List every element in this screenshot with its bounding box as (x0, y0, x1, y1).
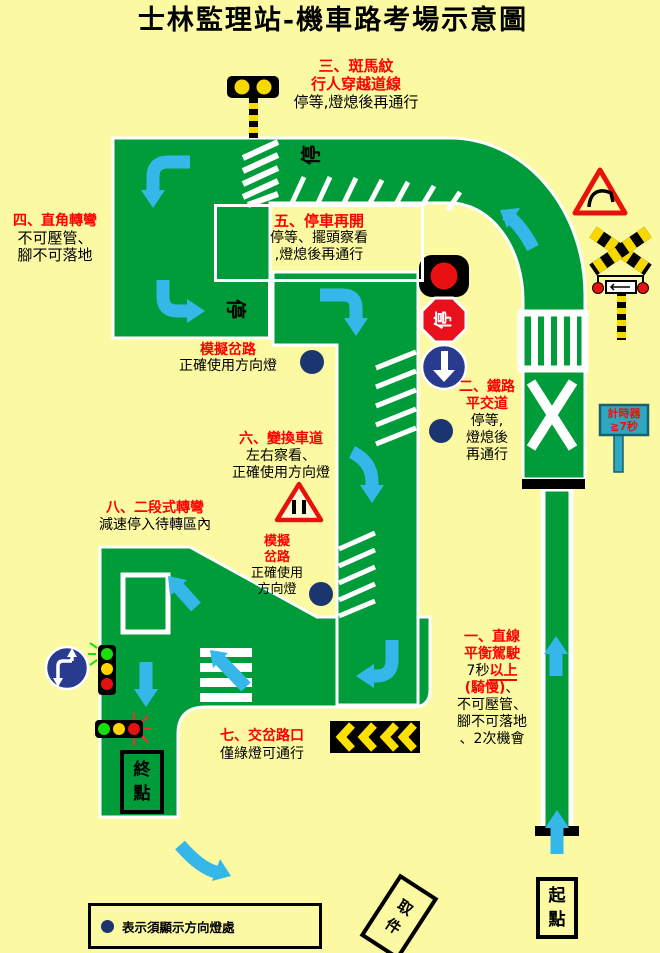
legend-box: 表示須顯示方向燈處 (88, 903, 322, 949)
section-1-heading-1: 一、直線 (457, 629, 527, 646)
section-5-body-2: ,燈熄後再通行 (217, 247, 421, 264)
section-1-body-4: 腳不可落地 (457, 714, 527, 731)
label-section-2: 二、鐵路 平交道 停等, 燈熄後 再通行 (459, 379, 515, 464)
stop-line-vertical (268, 282, 272, 338)
chevron-sign-icon (330, 721, 420, 753)
sim-fork-2-body-1: 正確使用 (251, 566, 303, 582)
section-1-heading-2: 平衡駕駛 (457, 646, 527, 663)
road-stop-word-left: 停 (224, 299, 248, 319)
section-4-body-2: 腳不可落地 (13, 247, 97, 264)
label-section-4: 四、直角轉彎 不可壓管、 腳不可落地 (13, 213, 97, 264)
narrow-road-sign-icon (277, 484, 321, 520)
section-4-body-1: 不可壓管、 (13, 230, 97, 247)
label-section-8: 八、二段式轉彎 減速停入待轉區內 (99, 500, 211, 534)
section-1-seconds: 7秒 (467, 663, 490, 679)
label-section-7: 七、交岔路口 僅綠燈可通行 (220, 727, 304, 763)
sim-fork-1-body: 正確使用方向燈 (179, 358, 277, 374)
sim-fork-2-heading-2: 岔路 (251, 550, 303, 566)
course-map: 計時器 ≧7秒 停 (0, 0, 660, 953)
sim-fork-2-heading-1: 模擬 (251, 534, 303, 550)
section-5-heading: 五、停車再開 (217, 213, 421, 230)
start-char-2: 點 (549, 908, 566, 932)
start-point-box: 起 點 (536, 877, 578, 939)
timer-sign: 計時器 ≧7秒 (600, 405, 648, 472)
section-1-body-3: 不可壓管、 (457, 697, 527, 714)
sim-fork-2-body-2: 方向燈 (251, 582, 303, 598)
section-4-heading: 四、直角轉彎 (13, 213, 97, 230)
road-stop-word-top: 停 (299, 145, 323, 165)
section-2-body-1: 停等, (459, 413, 515, 430)
pedestrian-signal-icon (227, 76, 279, 138)
railroad-crossbuck-icon (593, 232, 649, 340)
legend-text: 表示須顯示方向燈處 (122, 917, 235, 936)
timer-text-2: ≧7秒 (610, 419, 638, 433)
timer-text-1: 計時器 (608, 406, 642, 420)
section-2-body-2: 燈熄後 (459, 430, 515, 447)
label-section-6: 六、變換車道 左右察看、 正確使用方向燈 (232, 431, 330, 482)
arrow-finish-se (180, 845, 216, 872)
stop-bar-upper (522, 479, 585, 489)
end-char-1: 終 (134, 758, 151, 782)
section-7-body: 僅綠燈可通行 (220, 745, 304, 763)
end-point-box: 終 點 (120, 750, 164, 814)
section-7-heading: 七、交岔路口 (220, 727, 304, 745)
two-stage-turn-sign-icon (46, 647, 88, 689)
sim-fork-1-heading: 模擬岔路 (179, 342, 277, 358)
stop-sign-char: 停 (433, 311, 455, 329)
section-1-body-1: 7秒以上 (457, 663, 527, 680)
section-5-box: 五、停車再開 停等、擺頭察看 ,燈熄後再通行 (214, 204, 424, 282)
section-8-heading: 八、二段式轉彎 (99, 500, 211, 517)
start-char-1: 起 (549, 884, 566, 908)
traffic-light-vertical-icon (88, 643, 116, 695)
label-section-3: 三、斑馬紋 行人穿越道線 停等,燈熄後再通行 (294, 57, 419, 111)
section-2-heading-1: 二、鐵路 (459, 379, 515, 396)
page-title: 士林監理站-機車路考場示意圖 (138, 12, 528, 29)
label-sim-fork-2: 模擬 岔路 正確使用 方向燈 (251, 534, 303, 598)
section-1-comma: 、 (505, 680, 519, 696)
section-1-body-2: (騎慢)、 (457, 680, 527, 697)
legend-signal-dot (101, 920, 114, 933)
signal-dot-3 (309, 582, 333, 606)
label-section-1: 一、直線 平衡駕駛 7秒以上 (騎慢)、 不可壓管、 腳不可落地 、2次機會 (457, 629, 527, 748)
stop-sign-icon: 停 (422, 298, 466, 342)
section-2-body-3: 再通行 (459, 447, 515, 464)
label-sim-fork-1: 模擬岔路 正確使用方向燈 (179, 342, 277, 374)
signal-dot-1 (300, 350, 324, 374)
section-1-body-5: 、2次機會 (457, 731, 527, 748)
section-2-heading-2: 平交道 (459, 396, 515, 413)
section-8-body: 減速停入待轉區內 (99, 517, 211, 534)
section-3-heading-2: 行人穿越道線 (294, 75, 419, 93)
section-3-heading-1: 三、斑馬紋 (294, 57, 419, 75)
section-1-or-more: 以上 (489, 663, 517, 681)
section-6-heading: 六、變換車道 (232, 431, 330, 448)
curve-warning-sign-icon (575, 170, 625, 213)
course-diagram-svg: 計時器 ≧7秒 停 (0, 0, 660, 953)
red-signal-icon (419, 255, 469, 297)
section-5-body-1: 停等、擺頭察看 (217, 230, 421, 247)
section-6-body-2: 正確使用方向燈 (232, 465, 330, 482)
signal-dot-2 (429, 419, 453, 443)
section-6-body-1: 左右察看、 (232, 448, 330, 465)
section-3-body: 停等,燈熄後再通行 (294, 93, 419, 111)
end-char-2: 點 (134, 782, 151, 806)
section-1-ride-slow: (騎慢) (465, 680, 506, 696)
